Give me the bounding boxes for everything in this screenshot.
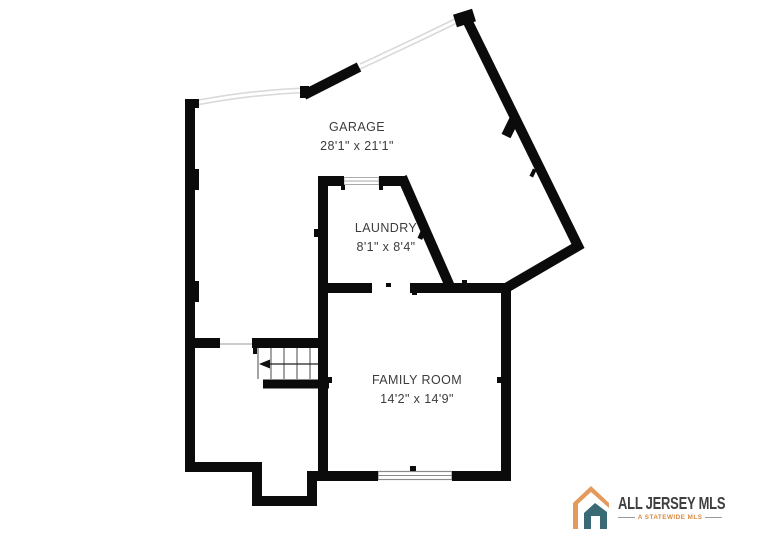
room-label-garage: GARAGE 28'1" x 21'1" — [320, 118, 394, 156]
room-label-laundry: LAUNDRY 8'1" x 8'4" — [355, 219, 417, 257]
logo-text: ALL JERSEY MLS — [618, 493, 725, 513]
room-dimensions: 8'1" x 8'4" — [355, 238, 417, 257]
room-name: LAUNDRY — [355, 219, 417, 238]
floor-plan-image: GARAGE 28'1" x 21'1" LAUNDRY 8'1" x 8'4"… — [0, 0, 768, 536]
room-dimensions: 28'1" x 21'1" — [320, 137, 394, 156]
house-logo-icon — [569, 483, 613, 531]
wall-right-and-garage-diagonal — [452, 20, 578, 476]
logo-tagline: A STATEWIDE MLS — [618, 514, 722, 521]
garage-door-openings — [199, 18, 457, 105]
room-label-family-room: FAMILY ROOM 14'2" x 14'9" — [372, 371, 462, 409]
walls — [185, 15, 578, 501]
wall-garage-door-pier — [304, 67, 359, 95]
floor-plan-drawing — [0, 0, 768, 536]
wall-left-and-bottom — [190, 99, 378, 501]
laundry-window — [344, 178, 379, 185]
room-name: GARAGE — [320, 118, 394, 137]
stairs-direction-arrow-icon — [259, 360, 318, 369]
tagline-dash-left — [618, 517, 635, 518]
room-dimensions: 14'2" x 14'9" — [372, 390, 462, 409]
stairs — [258, 348, 318, 379]
tagline-dash-right — [705, 517, 722, 518]
wall-top-right-corner — [455, 15, 474, 21]
mls-logo: ALL JERSEY MLS A STATEWIDE MLS — [569, 483, 763, 531]
family-room-window — [378, 472, 452, 480]
tagline-text: A STATEWIDE MLS — [638, 514, 703, 521]
room-name: FAMILY ROOM — [372, 371, 462, 390]
